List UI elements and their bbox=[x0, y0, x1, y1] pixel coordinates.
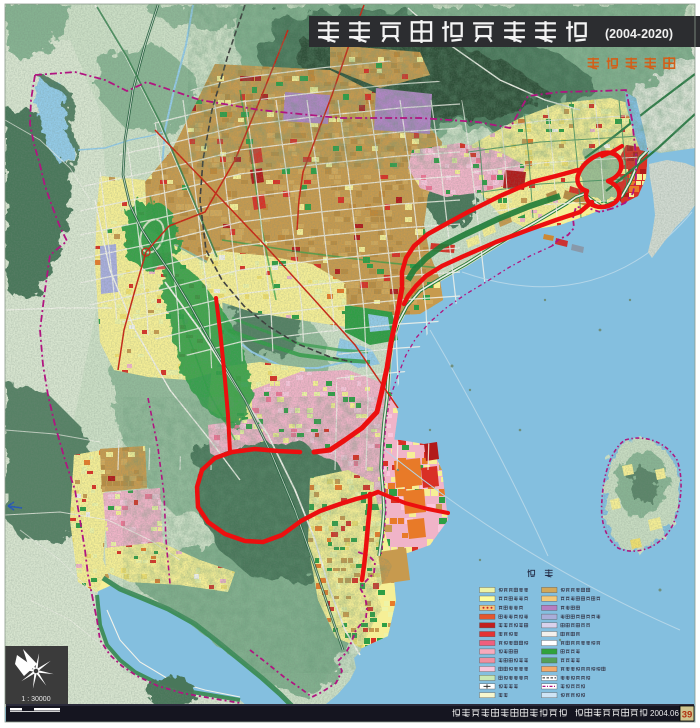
svg-text:(2004-2020): (2004-2020) bbox=[605, 27, 673, 41]
svg-text:39: 39 bbox=[682, 710, 693, 721]
svg-text:2004.06: 2004.06 bbox=[650, 709, 679, 718]
svg-text:1 : 30000: 1 : 30000 bbox=[21, 696, 50, 703]
